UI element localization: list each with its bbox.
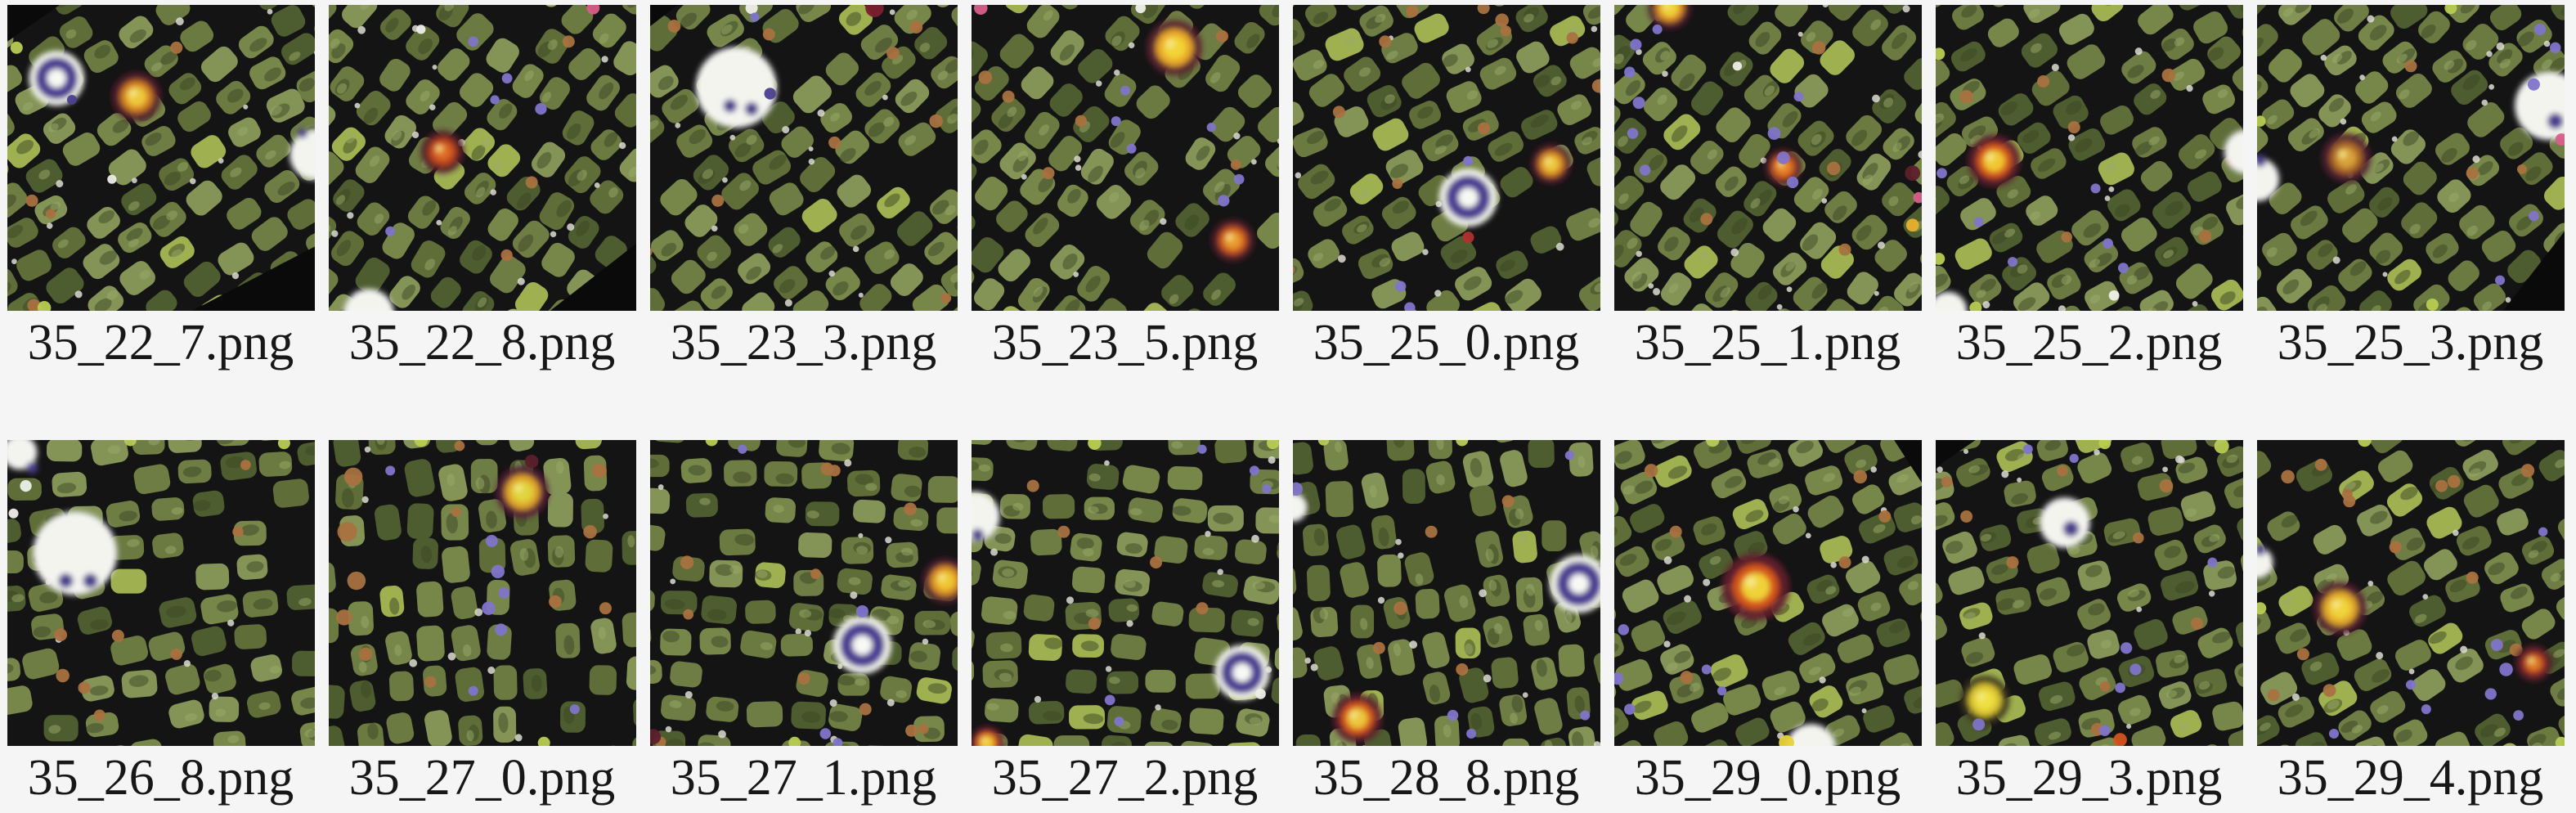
micrograph-image [1293,440,1600,746]
thumbnail-cell: 35_25_2.png [1928,5,2250,370]
filename-label: 35_29_3.png [1928,751,2250,805]
micrograph-svg [1614,5,1922,311]
thumbnail-cell: 35_26_8.png [0,440,321,805]
micrograph-svg [1293,440,1600,746]
micrograph-svg [972,5,1279,311]
micrograph-image [1936,440,2243,746]
thumbnail-cell: 35_25_1.png [1607,5,1928,370]
filename-label: 35_29_4.png [2250,751,2571,805]
micrograph-svg [1936,5,2243,311]
filename-label: 35_23_3.png [643,316,964,370]
thumbnail-grid: 35_22_7.png 35_22_8.png 35_23_3.png 35_2… [0,0,2576,813]
micrograph-image [1936,5,2243,311]
micrograph-svg [2257,440,2565,746]
filename-label: 35_23_5.png [964,316,1286,370]
thumbnail-cell: 35_28_8.png [1286,440,1607,805]
filename-label: 35_25_0.png [1286,316,1607,370]
micrograph-svg [7,440,315,746]
thumbnail-cell: 35_29_3.png [1928,440,2250,805]
micrograph-image [329,440,636,746]
micrograph-image [972,5,1279,311]
micrograph-image [7,5,315,311]
micrograph-svg [1614,440,1922,746]
thumbnail-cell: 35_25_0.png [1286,5,1607,370]
filename-label: 35_22_7.png [0,316,321,370]
thumbnail-cell: 35_27_1.png [643,440,964,805]
thumbnail-cell: 35_25_3.png [2250,5,2571,370]
micrograph-svg [329,440,636,746]
thumbnail-cell: 35_23_5.png [964,5,1286,370]
micrograph-svg [7,5,315,311]
micrograph-image [650,440,958,746]
micrograph-image [2257,5,2565,311]
filename-label: 35_27_0.png [321,751,643,805]
filename-label: 35_25_2.png [1928,316,2250,370]
micrograph-image [329,5,636,311]
filename-label: 35_28_8.png [1286,751,1607,805]
filename-label: 35_27_2.png [964,751,1286,805]
micrograph-image [1614,5,1922,311]
thumbnail-cell: 35_27_2.png [964,440,1286,805]
filename-label: 35_27_1.png [643,751,964,805]
micrograph-image [1293,5,1600,311]
filename-label: 35_26_8.png [0,751,321,805]
micrograph-svg [1293,5,1600,311]
micrograph-image [972,440,1279,746]
micrograph-svg [2257,5,2565,311]
thumbnail-cell: 35_22_8.png [321,5,643,370]
micrograph-image [650,5,958,311]
filename-label: 35_22_8.png [321,316,643,370]
thumbnail-cell: 35_27_0.png [321,440,643,805]
micrograph-svg [650,440,958,746]
filename-label: 35_25_1.png [1607,316,1928,370]
micrograph-svg [650,5,958,311]
micrograph-image [1614,440,1922,746]
micrograph-svg [329,5,636,311]
thumbnail-cell: 35_22_7.png [0,5,321,370]
micrograph-svg [1936,440,2243,746]
thumbnail-cell: 35_23_3.png [643,5,964,370]
thumbnail-row-2: 35_26_8.png 35_27_0.png 35_27_1.png 35_2… [0,440,2571,805]
thumbnail-row-1: 35_22_7.png 35_22_8.png 35_23_3.png 35_2… [0,5,2571,370]
micrograph-image [7,440,315,746]
thumbnail-cell: 35_29_0.png [1607,440,1928,805]
filename-label: 35_29_0.png [1607,751,1928,805]
filename-label: 35_25_3.png [2250,316,2571,370]
micrograph-image [2257,440,2565,746]
micrograph-svg [972,440,1279,746]
thumbnail-cell: 35_29_4.png [2250,440,2571,805]
